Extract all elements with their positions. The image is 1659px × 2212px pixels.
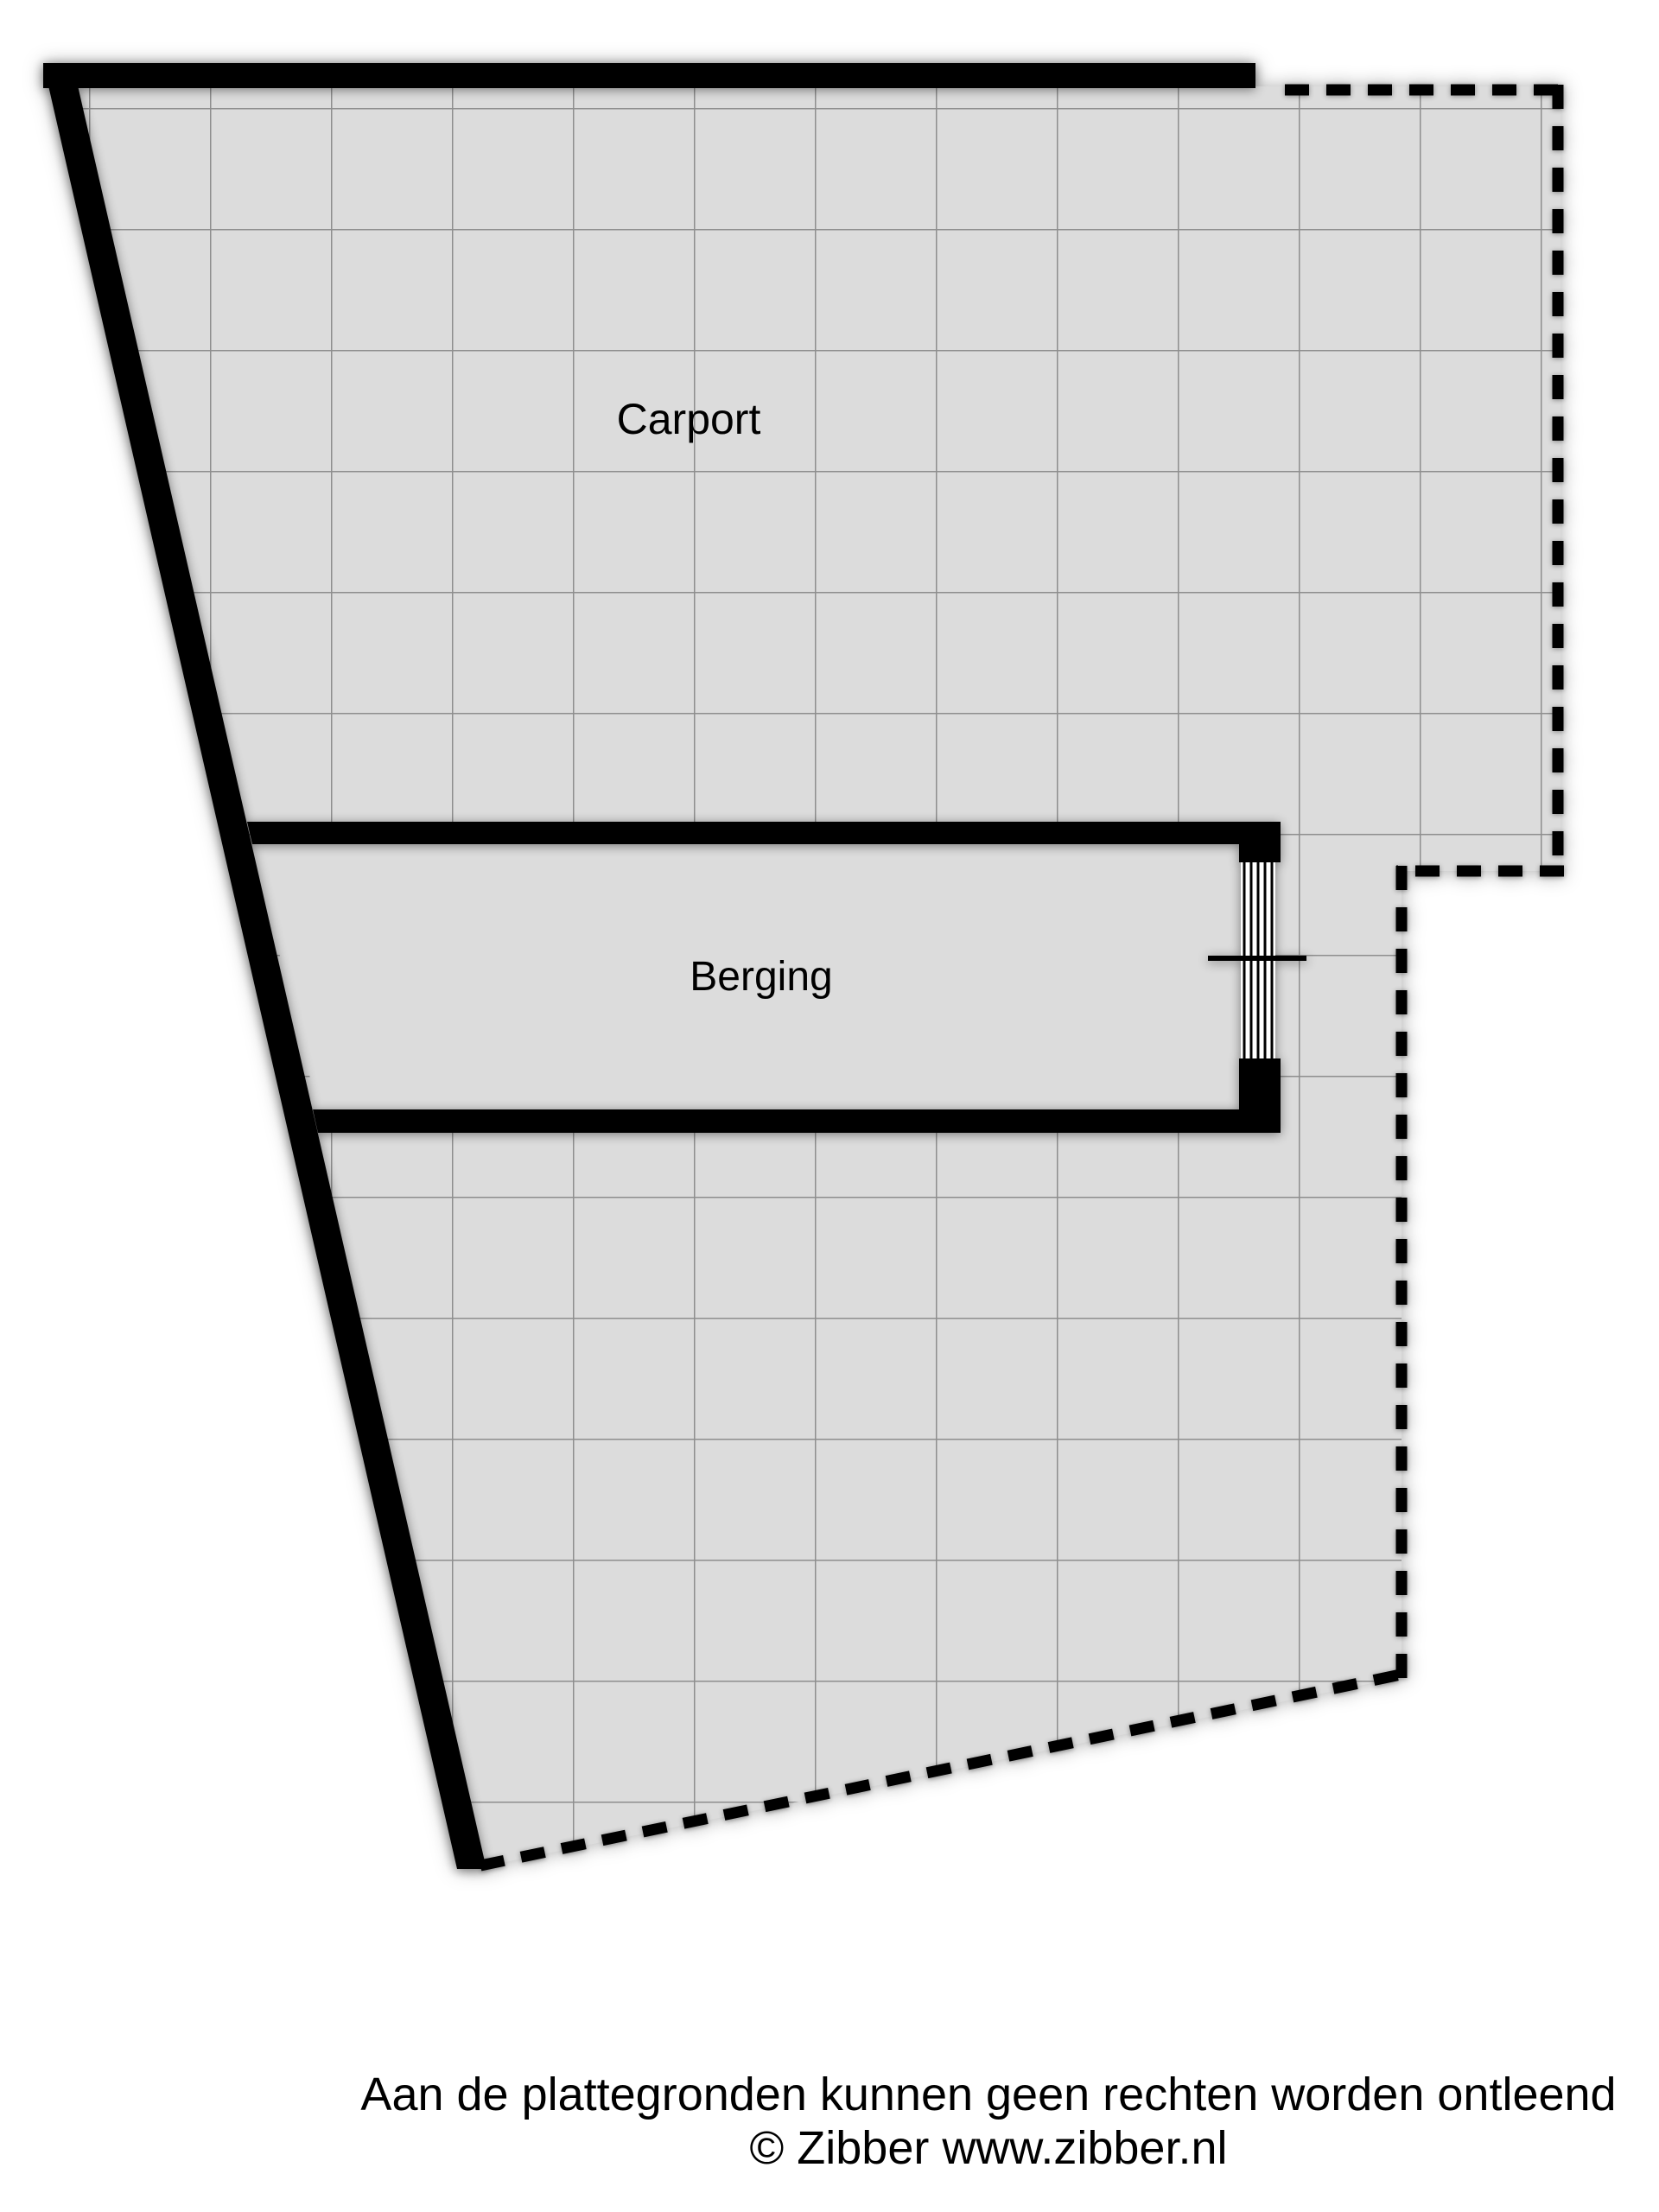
window-jamb-bottom <box>1239 1058 1281 1133</box>
wall-top <box>43 63 1255 88</box>
credit-text: © Zibber www.zibber.nl <box>750 2122 1228 2174</box>
berging-label: Berging <box>690 954 832 1000</box>
berging-wall-top <box>247 822 1281 844</box>
window-sill-tick <box>1208 956 1306 961</box>
berging-wall-bottom <box>313 1109 1281 1133</box>
floorplan-canvas: Carport Berging Aan de plattegronden kun… <box>0 0 1659 2212</box>
carport-label: Carport <box>617 395 761 443</box>
disclaimer-text: Aan de plattegronden kunnen geen rechten… <box>360 2069 1616 2120</box>
floorplan: Carport Berging <box>43 63 1564 1869</box>
window-jamb-top <box>1239 822 1281 862</box>
